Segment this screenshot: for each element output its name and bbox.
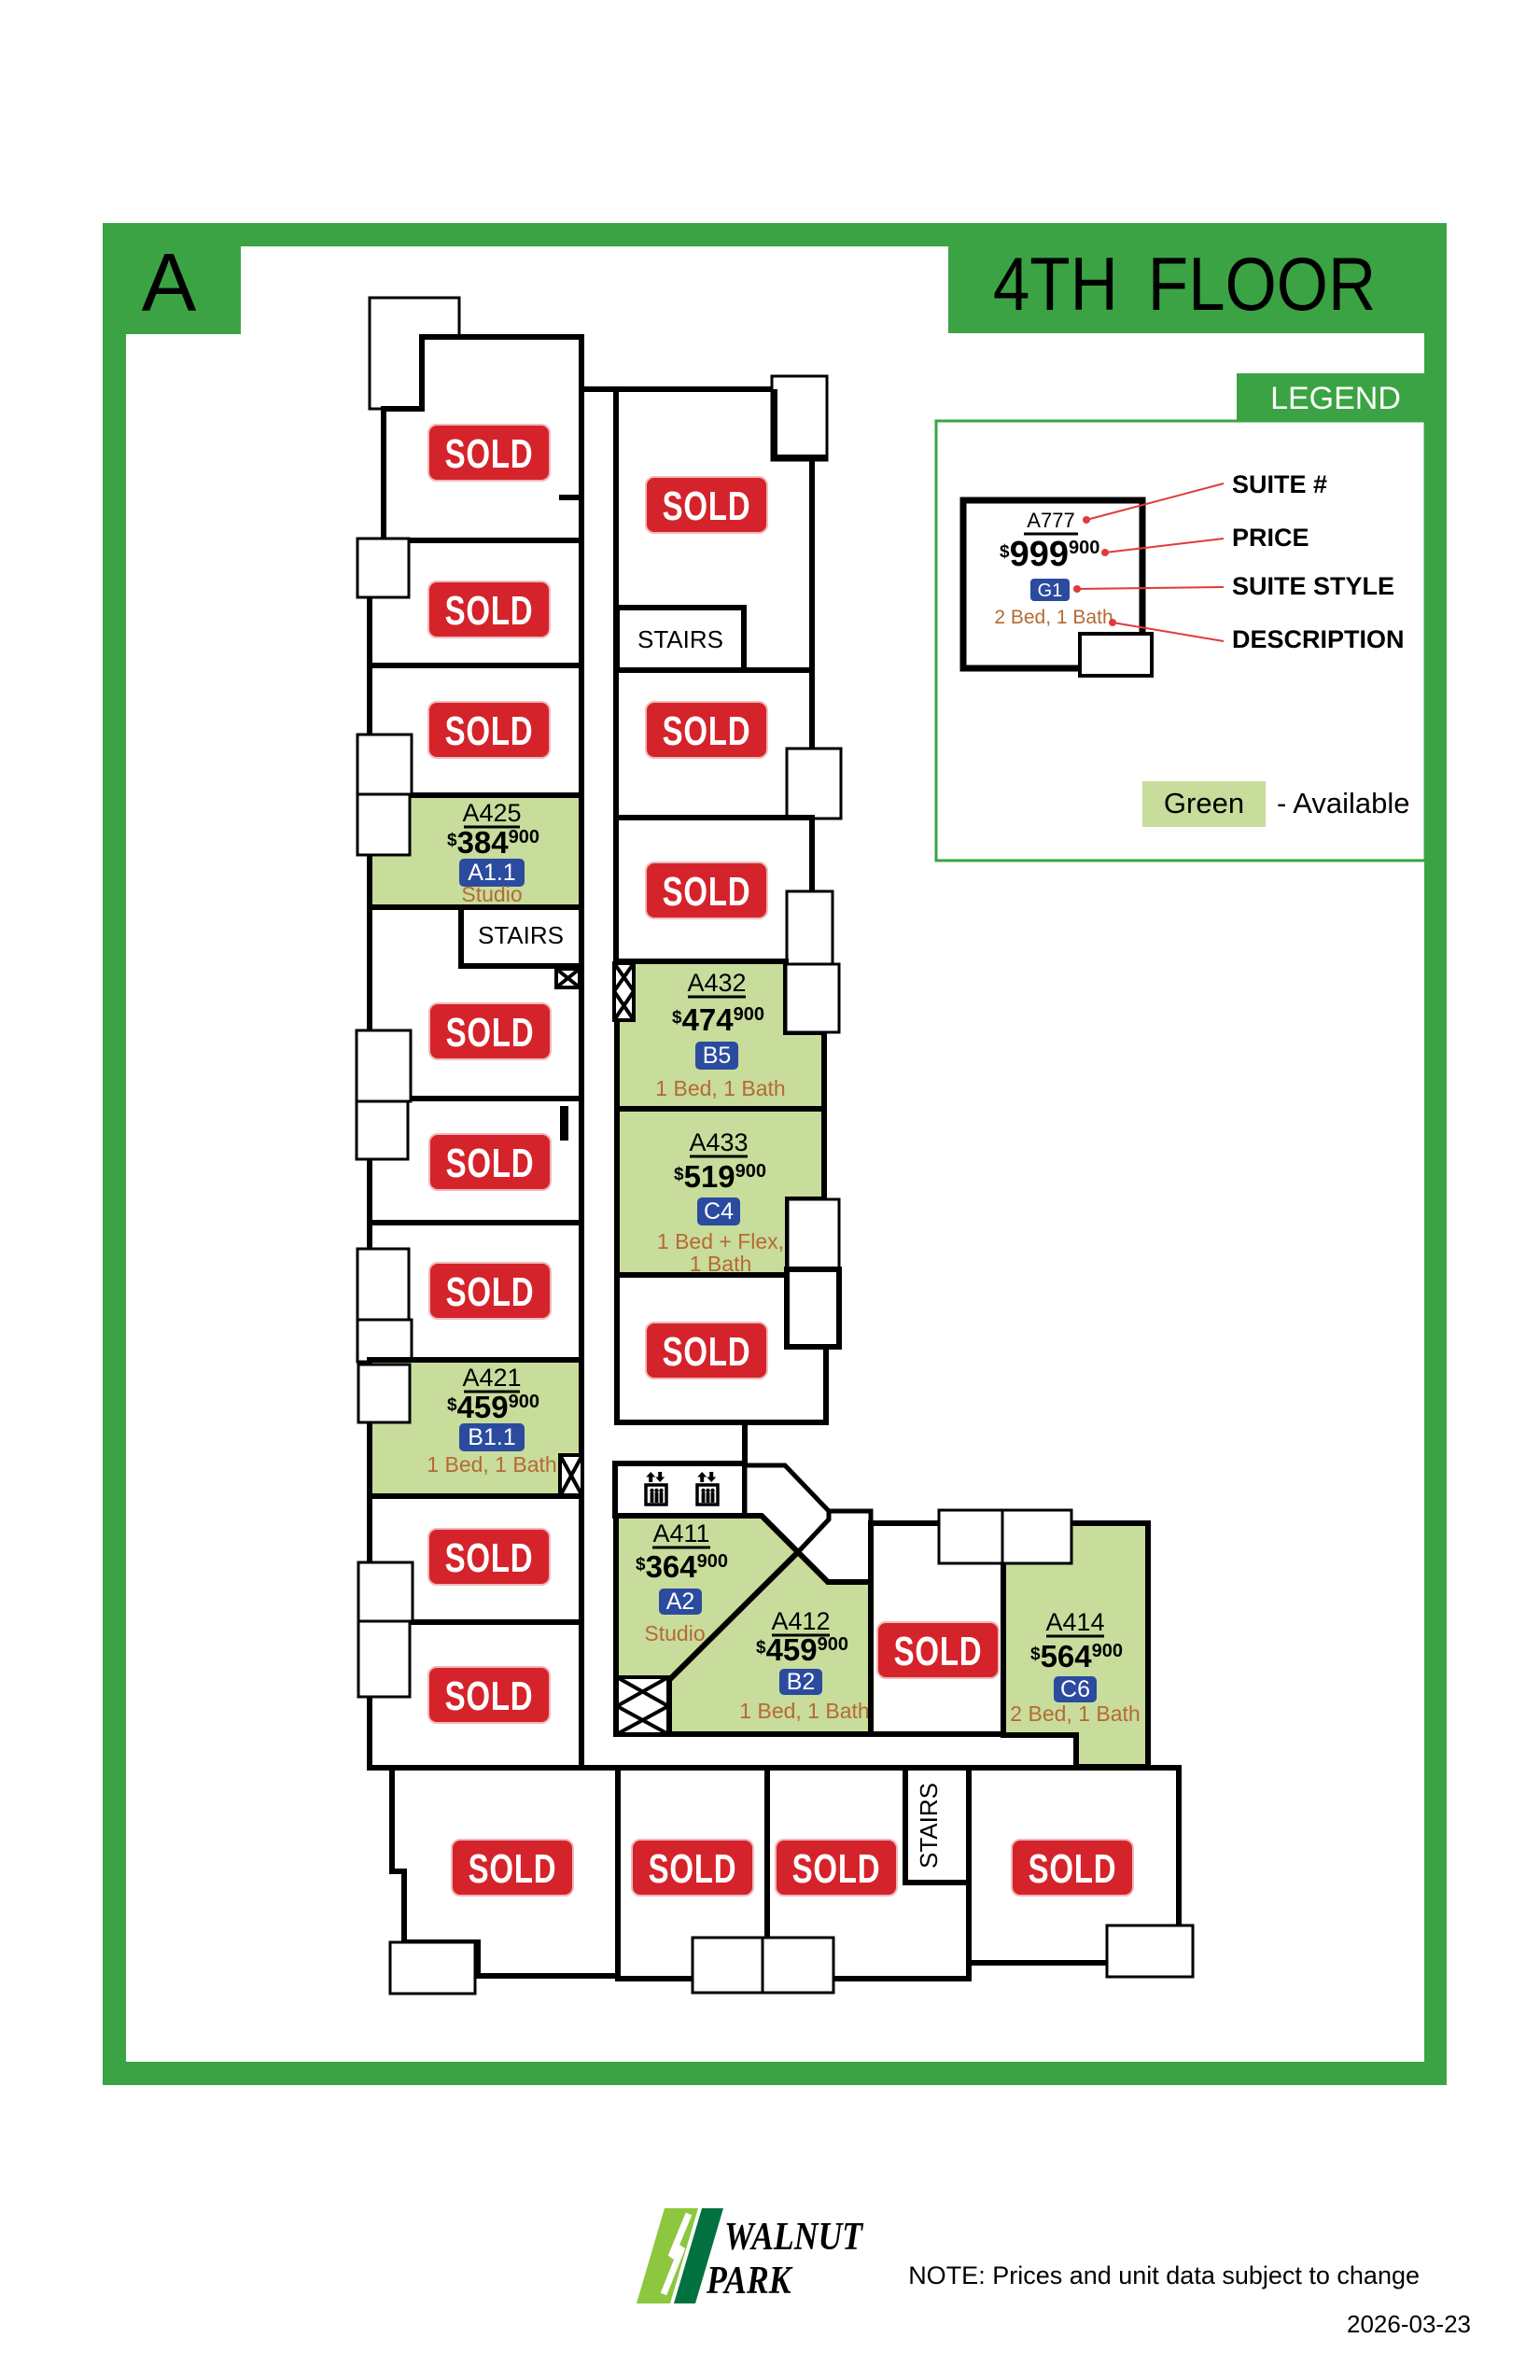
svg-text:A414: A414 [1045, 1608, 1104, 1636]
svg-text:NOTE: Prices and unit data sub: NOTE: Prices and unit data subject to ch… [908, 2261, 1420, 2289]
svg-text:A411: A411 [652, 1519, 709, 1547]
svg-text:Green: Green [1164, 787, 1244, 819]
svg-text:C6: C6 [1060, 1676, 1090, 1702]
svg-text:PRICE: PRICE [1232, 524, 1309, 552]
svg-text:PARK: PARK [706, 2259, 793, 2302]
svg-text:SUITE #: SUITE # [1232, 470, 1327, 498]
svg-text:A412: A412 [771, 1607, 830, 1635]
svg-text:STAIRS: STAIRS [478, 921, 564, 949]
svg-text:C4: C4 [704, 1198, 734, 1225]
svg-text:2 Bed, 1 Bath: 2 Bed, 1 Bath [994, 607, 1113, 628]
svg-text:B2: B2 [787, 1669, 816, 1695]
svg-text:Studio: Studio [461, 882, 522, 906]
svg-text:Studio: Studio [644, 1621, 705, 1645]
svg-text:A433: A433 [689, 1128, 748, 1156]
svg-text:LEGEND: LEGEND [1270, 381, 1401, 416]
svg-text:1 Bed, 1 Bath: 1 Bed, 1 Bath [739, 1699, 869, 1723]
svg-text:A: A [142, 236, 197, 329]
svg-text:2026-03-23: 2026-03-23 [1347, 2310, 1471, 2338]
svg-text:1 Bed + Flex,: 1 Bed + Flex, [657, 1229, 784, 1253]
svg-text:DESCRIPTION: DESCRIPTION [1232, 625, 1405, 653]
svg-text:A777: A777 [1027, 509, 1074, 532]
svg-text:2 Bed, 1 Bath: 2 Bed, 1 Bath [1010, 1701, 1140, 1726]
svg-text:B5: B5 [703, 1043, 732, 1069]
svg-text:G1: G1 [1038, 581, 1063, 601]
svg-text:A421: A421 [462, 1364, 521, 1392]
svg-text:A2: A2 [666, 1589, 695, 1615]
svg-text:WALNUT: WALNUT [724, 2215, 864, 2258]
svg-text:1 Bed, 1 Bath: 1 Bed, 1 Bath [655, 1076, 785, 1100]
svg-text:- Available: - Available [1277, 787, 1409, 819]
svg-text:STAIRS: STAIRS [637, 625, 723, 653]
svg-text:STAIRS: STAIRS [915, 1783, 943, 1869]
svg-text:A432: A432 [687, 969, 746, 997]
svg-text:1 Bed, 1 Bath: 1 Bed, 1 Bath [427, 1452, 556, 1477]
svg-text:4TH FLOOR: 4TH FLOOR [993, 243, 1376, 327]
svg-text:A425: A425 [462, 799, 521, 827]
svg-text:SUITE STYLE: SUITE STYLE [1232, 572, 1394, 600]
svg-text:B1.1: B1.1 [468, 1424, 515, 1450]
